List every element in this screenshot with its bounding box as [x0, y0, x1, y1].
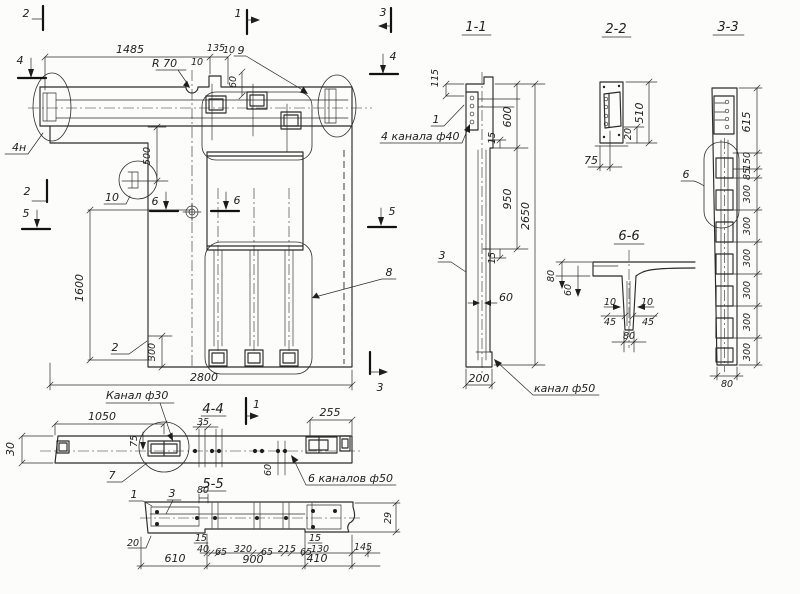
pos-1-11: 1 — [433, 113, 440, 126]
pos-8: 8 — [386, 266, 393, 279]
dim-15-right: 15 — [309, 533, 321, 544]
dim-60-strip: 60 — [263, 464, 274, 476]
dim-35: 35 — [197, 417, 209, 428]
pos-2: 2 — [112, 341, 119, 354]
mark-2-top: 2 — [23, 7, 30, 20]
dim-15-left: 15 — [195, 533, 207, 544]
detail-bubble-right-end — [318, 75, 356, 137]
mark-5-right: 5 — [389, 205, 396, 218]
left-end-embed — [43, 93, 56, 121]
section-6-6: 6-6 80 60 10 10 45 45 80 — [546, 229, 695, 352]
pos-1-55: 1 — [131, 488, 138, 501]
dim-150: 150 — [742, 152, 753, 170]
dim-1600: 1600 — [73, 274, 86, 302]
section-5-5: 1 3 80 29 20 15 15 40 65 320 65 215 65 1… — [127, 485, 400, 569]
dim-610: 610 — [165, 552, 186, 565]
dim-45-66b: 45 — [642, 317, 654, 328]
dim-300-e: 300 — [742, 313, 753, 331]
channel-group — [209, 188, 298, 366]
mark-5-left: 5 — [23, 207, 30, 220]
dim-10-tab: 10 — [223, 45, 235, 56]
sec33-embed-plate — [714, 96, 734, 134]
plan-view: 2 1 3 4 4 2 5 5 6 6 3 1485 R 70 135 10 1… — [5, 6, 398, 394]
mark-2-left: 2 — [24, 185, 31, 198]
strip-outline — [55, 436, 352, 463]
section-1-1: 1-1 115 1 4 канала ф40 600 — [380, 20, 599, 395]
dim-300-c: 300 — [742, 249, 753, 267]
mark-3-bottom: 3 — [377, 381, 384, 394]
dim-300-b: 300 — [742, 217, 753, 235]
dim-200: 200 — [469, 372, 490, 385]
dim-60: 60 — [228, 76, 239, 88]
sec11-outline — [466, 77, 493, 367]
mark-6-right: 6 — [234, 194, 241, 207]
dim-30: 30 — [4, 442, 17, 456]
detail-bubble-left-end — [33, 73, 71, 141]
embed-plate-1 — [206, 96, 226, 113]
detail-region-bottom — [205, 242, 312, 374]
pos-9: 9 — [238, 44, 245, 57]
dim-75-22: 75 — [584, 154, 598, 167]
pos-4n: 4н — [12, 141, 26, 154]
dim-20-55: 20 — [127, 538, 139, 549]
dim-29: 29 — [383, 512, 394, 524]
dim-80-33: 80 — [721, 379, 733, 390]
sec22-outline — [600, 82, 623, 143]
dim-15-11b: 15 — [487, 252, 498, 264]
note-6-kanalov: 6 каналов ф50 — [308, 472, 393, 485]
dim-950: 950 — [501, 189, 514, 210]
dim-215: 215 — [278, 544, 296, 555]
mark-4-right: 4 — [390, 50, 397, 63]
pos-6-33: 6 — [683, 168, 690, 181]
dim-60-66: 60 — [563, 284, 574, 296]
title-4-4: 4-4 — [202, 402, 223, 417]
dim-45-66a: 45 — [604, 317, 616, 328]
dim-80-66: 80 — [546, 270, 557, 282]
circle-embed — [128, 172, 138, 188]
sec33-bolts — [715, 100, 729, 129]
sec66-slab — [593, 262, 695, 276]
sec66-rib-shade — [627, 281, 630, 326]
note-kanal-f50: канал ф50 — [534, 382, 595, 395]
pos-10: 10 — [105, 191, 119, 204]
pos-3-11: 3 — [439, 249, 446, 262]
dim-510: 510 — [633, 103, 646, 124]
blueprint-sheet: 2 1 3 4 4 2 5 5 6 6 3 1485 R 70 135 10 1… — [0, 0, 800, 594]
strip-left-embed — [57, 441, 69, 453]
detail-bubble-33 — [704, 142, 739, 228]
embed-plate-3 — [281, 112, 301, 129]
dim-300-d: 300 — [742, 281, 753, 299]
sec55-stirrups — [212, 503, 312, 528]
dim-2800: 2800 — [190, 371, 218, 384]
dim-1050: 1050 — [88, 410, 116, 423]
dim-20-22: 20 — [623, 128, 634, 140]
dim-10-gap: 10 — [191, 57, 203, 68]
dim-145: 145 — [354, 542, 372, 553]
strip-view: Канал ф30 1050 30 75 4-4 35 1 255 7 60 6… — [4, 389, 396, 492]
strip-right-embeds — [306, 436, 350, 453]
sec33-coupler-chain — [716, 138, 733, 372]
dim-r70: R 70 — [152, 57, 177, 70]
pos-3-55: 3 — [169, 487, 176, 500]
dim-300: 300 — [147, 343, 158, 361]
title-1-1: 1-1 — [465, 20, 486, 35]
section-marks — [18, 6, 398, 376]
dim-300-a: 300 — [742, 185, 753, 203]
note-kanal-f30: Канал ф30 — [106, 389, 168, 402]
dim-15-11a: 15 — [487, 132, 498, 144]
dim-1485: 1485 — [116, 43, 144, 56]
panel-body-outline — [50, 87, 352, 367]
note-4-kanala-f40: 4 канала ф40 — [381, 130, 459, 143]
title-6-6: 6-6 — [618, 229, 639, 244]
plan-dimensions — [5, 54, 396, 390]
dim-600: 600 — [501, 107, 514, 128]
pos-7: 7 — [109, 469, 116, 482]
dim-80-55: 80 — [197, 485, 209, 496]
opening-rect — [207, 152, 303, 250]
mark-1-top: 1 — [235, 7, 242, 20]
mark-6-left: 6 — [152, 195, 159, 208]
dim-410: 410 — [307, 552, 328, 565]
dim-10-66a: 10 — [604, 297, 616, 308]
sec55-outline — [145, 502, 355, 533]
section-2-2: 2-2 510 20 75 — [584, 22, 657, 171]
dim-80-66-bottom: 80 — [623, 331, 635, 342]
dim-615: 615 — [740, 112, 753, 133]
embed-plate-2 — [247, 92, 267, 109]
drawing-canvas: 2 1 3 4 4 2 5 5 6 6 3 1485 R 70 135 10 1… — [0, 0, 800, 594]
title-2-2: 2-2 — [605, 22, 626, 37]
dim-65-a: 65 — [215, 547, 227, 558]
dim-500: 500 — [142, 147, 153, 165]
section-3-3: 3-3 615 150 85 300 300 300 300 300 30 — [681, 20, 762, 390]
dim-115: 115 — [430, 69, 441, 87]
title-3-3: 3-3 — [717, 20, 738, 35]
dim-75: 75 — [129, 435, 140, 447]
dim-255: 255 — [320, 406, 341, 419]
dim-40: 40 — [197, 544, 209, 555]
mark-3-top: 3 — [380, 6, 387, 19]
dim-2650: 2650 — [519, 202, 532, 230]
dim-10-66b: 10 — [641, 297, 653, 308]
strip-center-embed — [148, 441, 180, 456]
dim-300-f: 300 — [742, 343, 753, 361]
dim-900: 900 — [243, 553, 264, 566]
mark-1-strip: 1 — [253, 398, 260, 411]
sec11-embed-plate — [466, 92, 478, 130]
lifting-point-symbol — [183, 203, 201, 221]
dim-85: 85 — [742, 168, 753, 180]
mark-4-left: 4 — [17, 54, 24, 67]
dim-60-11: 60 — [499, 291, 513, 304]
